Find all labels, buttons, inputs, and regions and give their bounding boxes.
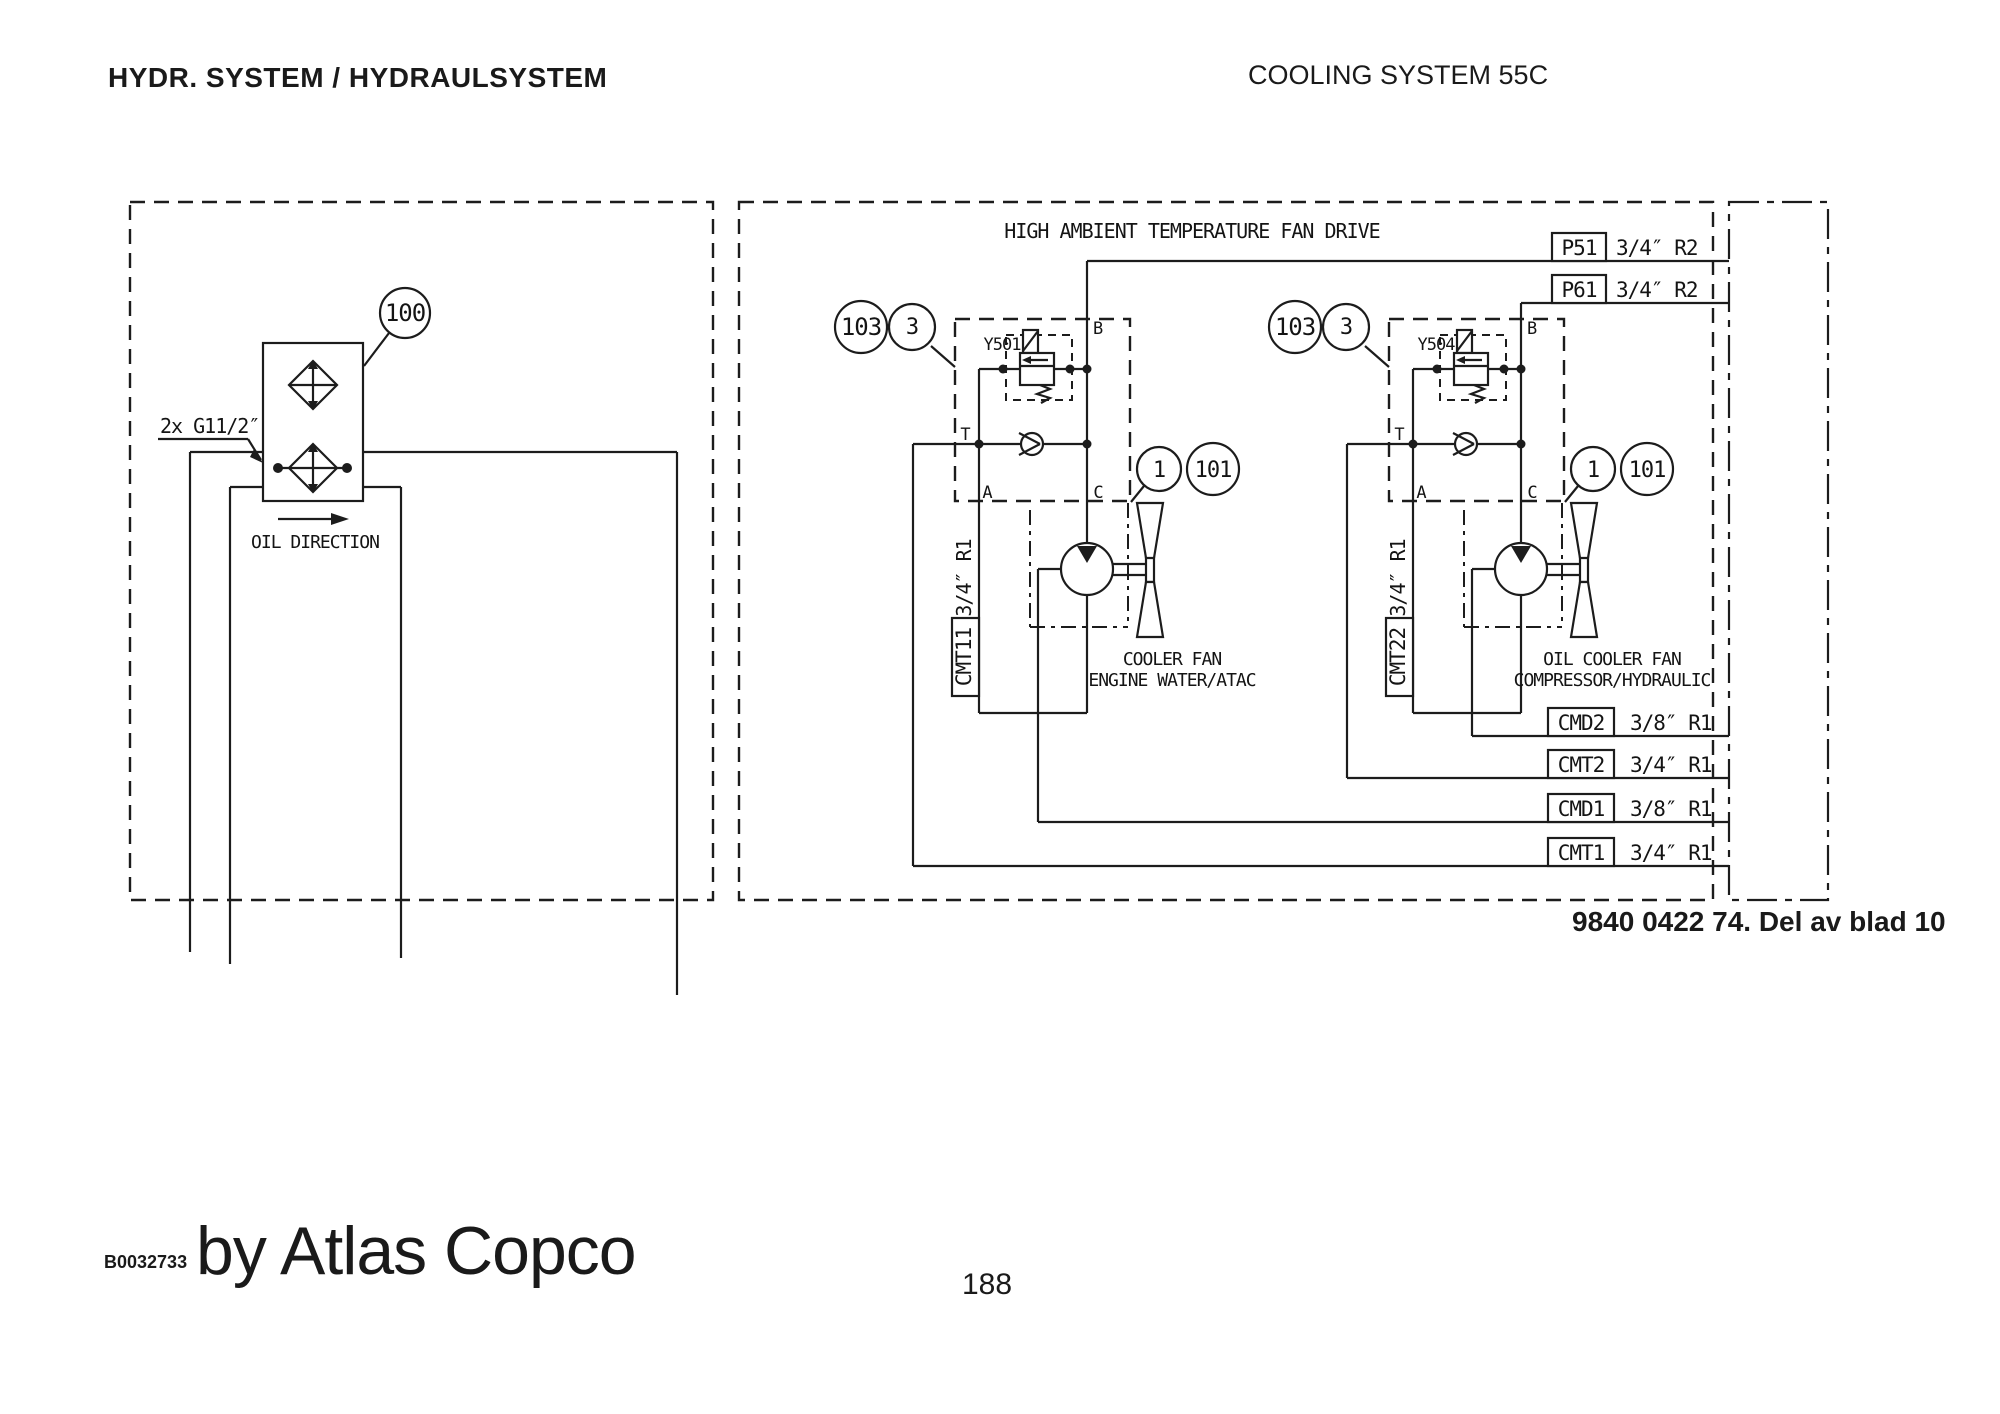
port-size: 3/4″ R2 [1616,278,1698,302]
callout-101: 101 [1629,458,1666,483]
callout-103: 103 [841,313,881,341]
port-a: A [1416,483,1426,503]
oil-direction-label: OIL DIRECTION [251,532,379,553]
caption-line1: COOLER FAN [1123,649,1222,670]
line-port-label: CMT22 [1386,628,1410,686]
continuation-frame [1729,202,1828,900]
port-c: C [1093,483,1102,503]
line-port-size: 3/4″ R1 [952,539,976,616]
fan-drive-title: HIGH AMBIENT TEMPERATURE FAN DRIVE [1004,219,1379,243]
port-CMT2: CMT2 3/4″ R1 [1548,750,1712,778]
port-size-note-label: 2x G11/2″ [160,414,259,438]
caption-line1: OIL COOLER FAN [1543,649,1681,670]
hydraulic-schematic: 100 2x G11/2″ OIL DIRECTION HIGH AMBIENT… [0,0,2000,1414]
valve-id: Y501 [984,335,1022,355]
port-size: 3/8″ R1 [1630,711,1712,735]
port-CMT1: CMT1 3/4″ R1 [1548,838,1712,866]
callout-3: 3 [906,315,918,340]
flow-arrow-icon [331,513,349,525]
port-label: CMT2 [1558,753,1605,777]
brand-byline: by Atlas Copco [196,1212,636,1290]
port-label: CMD2 [1558,711,1605,735]
port-label: P61 [1562,278,1597,302]
cooler-callout: 100 [364,288,430,366]
port-a: A [982,483,992,503]
manual-page: HYDR. SYSTEM / HYDRAULSYSTEM COOLING SYS… [0,0,2000,1414]
port-P61: P61 3/4″ R2 [1552,275,1698,303]
oil-cooler-block: 100 2x G11/2″ OIL DIRECTION [130,202,713,995]
port-label: CMD1 [1558,797,1605,821]
caption-line2: COMPRESSOR/HYDRAULIC [1514,670,1711,691]
port-size-note: 2x G11/2″ [158,414,263,463]
interface-port-labels: P51 3/4″ R2 P61 3/4″ R2 CMD2 3/8″ R1 CMT… [1548,233,1712,866]
callout-1: 1 [1587,458,1599,483]
caption-line2: ENGINE WATER/ATAC [1088,670,1255,691]
callout-1: 1 [1153,458,1165,483]
page-number: 188 [962,1268,1012,1302]
port-size: 3/4″ R1 [1630,841,1712,865]
callout-103: 103 [1275,313,1315,341]
drawing-code: B0032733 [104,1252,187,1273]
port-CMD2: CMD2 3/8″ R1 [1548,708,1712,736]
line-port-size: 3/4″ R1 [1386,539,1410,616]
port-label: CMT1 [1558,841,1605,865]
port-t: T [960,425,970,445]
port-size: 3/4″ R1 [1630,753,1712,777]
doc-reference: 9840 0422 74. Del av blad 10 [1572,906,1946,938]
port-b: B [1527,319,1537,339]
port-size: 3/4″ R2 [1616,236,1698,260]
port-c: C [1527,483,1536,503]
line-port-label: CMT11 [952,628,976,687]
callout-3: 3 [1340,315,1352,340]
valve-id: Y504 [1418,335,1456,355]
oil-cooler-symbol [263,343,363,501]
port-size: 3/8″ R1 [1630,797,1712,821]
oil-direction: OIL DIRECTION [251,513,379,553]
port-t: T [1394,425,1404,445]
port-CMD1: CMD1 3/8″ R1 [1548,794,1712,822]
port-P51: P51 3/4″ R2 [1552,233,1698,261]
fan-drive-block: HIGH AMBIENT TEMPERATURE FAN DRIVE [739,202,1828,900]
callout-101: 101 [1195,458,1232,483]
port-b: B [1093,319,1103,339]
callout-100-label: 100 [385,299,425,327]
port-label: P51 [1562,236,1597,260]
